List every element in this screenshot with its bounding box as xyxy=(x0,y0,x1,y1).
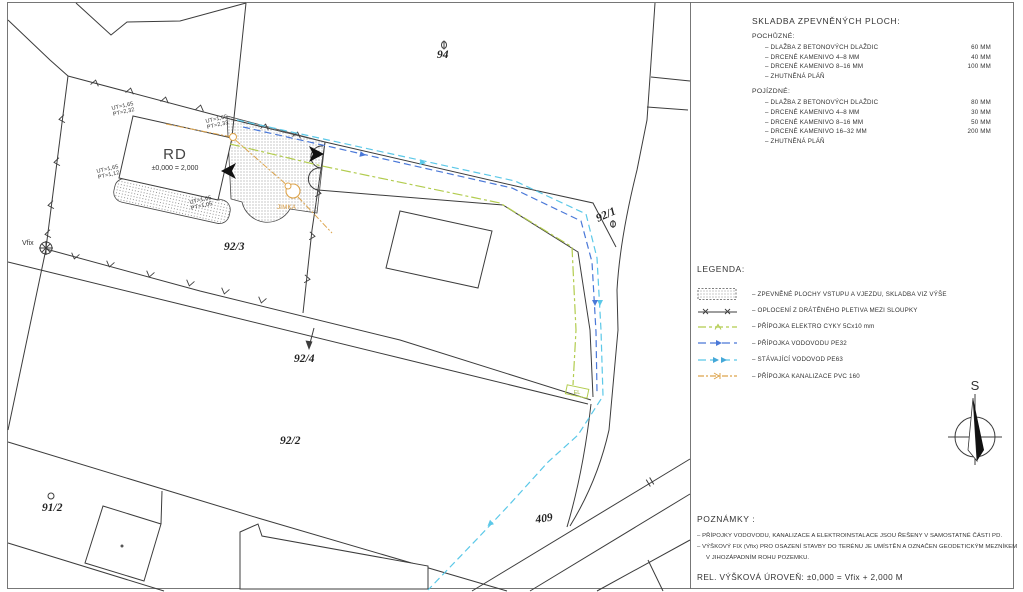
section-pochuzne: POCHŮZNÉ: xyxy=(752,33,991,40)
parcel-92-4-pointer xyxy=(306,328,315,350)
legend-item: – PŘÍPOJKA ELEKTRO CYKY 5Cx10 mm xyxy=(697,319,947,335)
water-new-line-icon xyxy=(697,336,743,350)
electro-meter-box: EL xyxy=(565,385,588,398)
elevation-label-ne: UT=1,65 PT=2,33 xyxy=(205,114,229,131)
relative-level-note: REL. VÝŠKOVÁ ÚROVEŇ: ±0,000 = Vfix + 2,0… xyxy=(697,573,903,582)
parcel-label-92-2: 92/2 xyxy=(280,435,301,447)
info-panel: SKLADBA ZPEVNĚNÝCH PLOCH: POCHŮZNÉ: – DL… xyxy=(691,2,1013,589)
material-row: – DRCENÉ KAMENIVO 4–8 MM30 MM xyxy=(752,108,991,118)
legend-item: – PŘÍPOJKA KANALIZACE PVC 160 xyxy=(697,368,947,384)
material-row: – DRCENÉ KAMENIVO 8–16 MM50 MM xyxy=(752,118,991,128)
composition-title: SKLADBA ZPEVNĚNÝCH PLOCH: xyxy=(752,16,991,26)
material-row: – DRCENÉ KAMENIVO 4–8 MM40 MM xyxy=(752,53,991,63)
material-row: – ZHUTNĚNÁ PLÁŇ xyxy=(752,137,991,147)
water-exist-line-icon xyxy=(697,353,743,367)
sewer-line-icon xyxy=(697,369,743,383)
legend-title: LEGENDA: xyxy=(697,264,947,274)
outbuilding-outline xyxy=(386,211,492,288)
elevation-label-w: UT=1,65 PT=1,12 xyxy=(96,164,120,181)
notes-block: POZNÁMKY : – PŘÍPOJKY VODOVODU, KANALIZA… xyxy=(697,514,1017,563)
material-row: – DRCENÉ KAMENIVO 16–32 MM200 MM xyxy=(752,127,991,137)
boundary-point-91-2 xyxy=(48,493,54,499)
material-row: – DLAŽBA Z BETONOVÝCH DLAŽDIC60 MM xyxy=(752,43,991,53)
parcel-boundaries xyxy=(8,3,690,591)
material-row: – DLAŽBA Z BETONOVÝCH DLAŽDIC80 MM xyxy=(752,98,991,108)
section-pojizdne: POJÍZDNÉ: xyxy=(752,88,991,95)
electro-line-icon xyxy=(697,320,743,334)
road-label-409: 409 xyxy=(534,512,554,526)
parcel-label-92-3: 92/3 xyxy=(224,241,245,253)
note-line: – VÝŠKOVÝ FIX (Vfix) PRO OSAZENÍ STAVBY … xyxy=(697,542,1017,553)
el-label: EL xyxy=(574,390,581,396)
paved-hatch-swatch-icon xyxy=(697,287,743,301)
house-level-note: ±0,000 = 2,000 xyxy=(152,165,199,172)
boundary-point-92-1 xyxy=(611,220,616,228)
legend-item: – PŘÍPOJKA VODOVODU PE32 xyxy=(697,335,947,351)
water-flow-arrows xyxy=(359,151,603,528)
vfix-marker xyxy=(39,241,53,255)
note-line: – PŘÍPOJKY VODOVODU, KANALIZACE A ELEKTR… xyxy=(697,531,1017,542)
legend-item: – ZPEVNĚNÉ PLOCHY VSTUPU A VJEZDU, SKLAD… xyxy=(697,286,947,302)
neighbor-building-bottom xyxy=(240,524,428,589)
pavement-composition-block: SKLADBA ZPEVNĚNÝCH PLOCH: POCHŮZNÉ: – DL… xyxy=(752,16,991,146)
parcel-label-92-4: 92/4 xyxy=(294,353,315,365)
parcel-label-91-2: 91/2 xyxy=(42,502,63,514)
material-row: – ZHUTNĚNÁ PLÁŇ xyxy=(752,72,991,82)
elevation-label-nw: UT=1,65 PT=2,32 xyxy=(111,101,135,118)
material-row: – DRCENÉ KAMENIVO 8–16 MM100 MM xyxy=(752,62,991,72)
fence-symbol-icon xyxy=(697,304,743,318)
drawing-sheet: EL JIMKA 94 92/3 92/4 92/2 91/2 xyxy=(0,0,1023,592)
sewer-shaft-symbol xyxy=(230,134,237,141)
vfix-label: Vfix xyxy=(22,240,34,247)
notes-title: POZNÁMKY : xyxy=(697,514,1017,524)
legend-item: – OPLOCENÍ Z DRÁTĚNÉHO PLETIVA MEZI SLOU… xyxy=(697,302,947,318)
house-label: RD xyxy=(163,146,187,163)
legend-item: – STÁVAJÍCÍ VODOVOD PE63 xyxy=(697,352,947,368)
legend-block: LEGENDA: – ZPEVNĚNÉ PLOCHY VSTUPU A VJEZ… xyxy=(697,264,947,384)
note-line: V JIHOZÁPADNÍM ROHU POZEMKU. xyxy=(697,553,1017,564)
jimka-label: JIMKA xyxy=(277,205,296,211)
parcel-label-94: 94 xyxy=(437,49,449,61)
